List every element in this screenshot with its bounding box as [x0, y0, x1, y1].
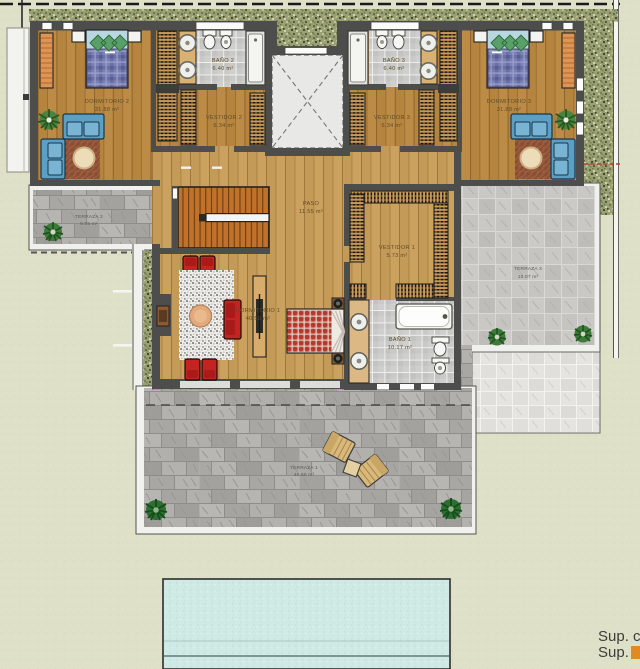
svg-text:BAÑO 2: BAÑO 2 [212, 57, 234, 64]
svg-text:PASO: PASO [303, 201, 320, 207]
svg-text:40.65 m²: 40.65 m² [294, 472, 315, 478]
svg-text:TERRAZA 1: TERRAZA 1 [290, 465, 318, 471]
svg-text:9.05 m²: 9.05 m² [80, 221, 98, 227]
svg-text:VESTIDOR 1: VESTIDOR 1 [379, 245, 415, 251]
svg-text:DORMITORIO 2: DORMITORIO 2 [85, 99, 130, 105]
svg-text:6.34 m²: 6.34 m² [213, 123, 234, 129]
svg-text:BAÑO 3: BAÑO 3 [383, 57, 405, 64]
svg-text:Sup.: Sup. [598, 644, 629, 661]
svg-text:31.88 m²: 31.88 m² [497, 107, 521, 113]
svg-text:Sup. c: Sup. c [598, 628, 640, 645]
svg-text:10.17 m²: 10.17 m² [388, 345, 412, 351]
svg-text:DORMITORIO 3: DORMITORIO 3 [487, 99, 532, 105]
svg-text:VESTIDOR 3: VESTIDOR 3 [374, 115, 410, 121]
svg-text:31.88 m²: 31.88 m² [95, 107, 119, 113]
svg-text:VESTIDOR 2: VESTIDOR 2 [206, 115, 242, 121]
svg-text:40.50 m²: 40.50 m² [246, 316, 270, 322]
svg-text:5.73 m²: 5.73 m² [386, 253, 407, 259]
svg-text:6.40 m²: 6.40 m² [212, 66, 233, 72]
svg-text:6.34 m²: 6.34 m² [381, 123, 402, 129]
svg-text:DORMITORIO 1: DORMITORIO 1 [236, 308, 281, 314]
svg-text:TERRAZA 3: TERRAZA 3 [514, 266, 542, 272]
svg-text:6.40 m²: 6.40 m² [383, 66, 404, 72]
svg-text:TERRAZA 2: TERRAZA 2 [75, 214, 103, 220]
svg-text:BAÑO 1: BAÑO 1 [389, 336, 411, 343]
svg-text:10.07 m²: 10.07 m² [518, 274, 539, 280]
svg-text:11.55 m²: 11.55 m² [299, 209, 323, 215]
